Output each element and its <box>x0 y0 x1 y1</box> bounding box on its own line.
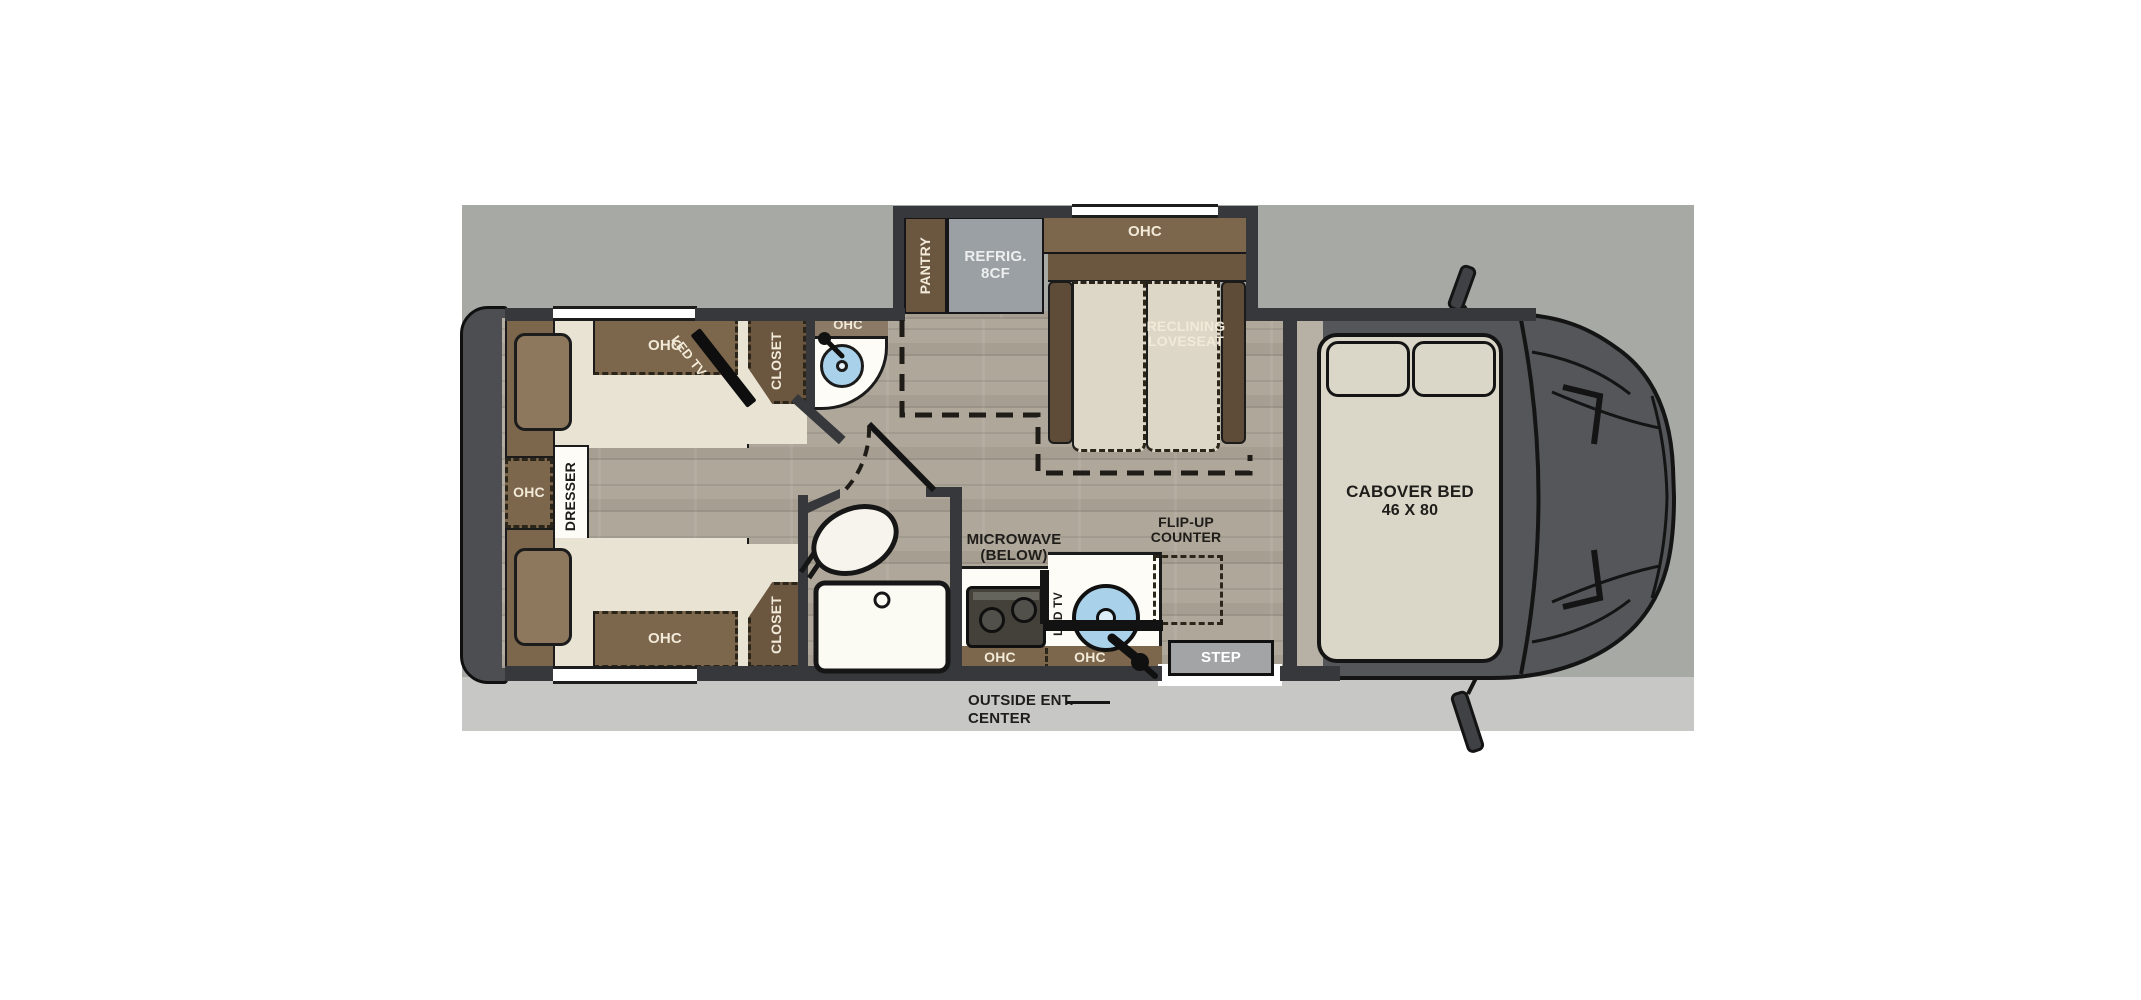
flipup-counter-outline <box>1153 555 1223 625</box>
window-top-bedroom <box>553 306 697 321</box>
ohc-galley-left-label: OHC <box>980 648 1020 668</box>
side-mirror-bottom <box>1451 678 1484 753</box>
ohc-bedroom-bottom: OHC <box>593 611 738 668</box>
slideout-wall-right <box>1246 206 1258 318</box>
pillow-top-bed <box>514 333 572 431</box>
slideout-wall-left <box>893 206 904 318</box>
loveseat-cushion-right <box>1146 281 1220 452</box>
microwave-label-1: MICROWAVE <box>967 531 1062 548</box>
bath-wall-left <box>798 495 808 668</box>
rear-cap <box>460 306 508 684</box>
wall-top-mid <box>695 308 905 321</box>
ohc-bedroom-bottom-label: OHC <box>648 631 682 647</box>
wall-vanity-divider <box>806 318 815 408</box>
loveseat-armrest-right <box>1221 281 1246 444</box>
microwave-label-2: (BELOW) <box>980 547 1047 564</box>
cabover-pillow-right <box>1412 341 1496 397</box>
bath-wall-top-stub <box>926 487 962 497</box>
bath-wall-right <box>950 487 962 668</box>
wall-top-rear <box>505 308 555 321</box>
wall-bottom-front <box>1280 666 1340 681</box>
dresser-label: DRESSER <box>563 462 578 531</box>
outside-ent-label-line2: CENTER <box>968 711 1080 727</box>
loveseat-backrest <box>1048 254 1246 282</box>
outside-ent-leader-line <box>1066 701 1110 704</box>
burner-left <box>979 607 1005 633</box>
microwave-label: MICROWAVE (BELOW) <box>958 530 1070 566</box>
burner-right <box>1011 597 1037 623</box>
loveseat-label: RECLINING LOVESEAT <box>1146 314 1226 354</box>
window-slideout <box>1072 204 1218 218</box>
pillow-bottom-bed <box>514 548 572 646</box>
ohc-slideout: OHC <box>1044 212 1246 254</box>
pantry-label: PANTRY <box>918 237 933 294</box>
vanity-sink-drain <box>836 360 848 372</box>
loveseat-armrest-left <box>1048 281 1073 444</box>
ohc-galley-right-label: OHC <box>1070 648 1110 668</box>
refrigerator: REFRIG. 8CF <box>947 217 1044 314</box>
loveseat-label-1: RECLINING <box>1147 318 1226 334</box>
ohc-rear-mid: OHC <box>505 458 553 528</box>
loveseat-cushion-left <box>1072 281 1146 452</box>
cooktop <box>966 586 1046 648</box>
ohc-rear-mid-label: OHC <box>513 485 545 500</box>
kitchen-tv <box>1040 570 1049 624</box>
cabover-label-1: CABOVER BED <box>1346 482 1474 501</box>
outside-ent-label-line1: OUTSIDE ENT. <box>968 693 1080 709</box>
loveseat-label-2: LOVESEAT <box>1148 333 1224 349</box>
refrig-label-1: REFRIG. <box>964 248 1026 265</box>
cabover-bed-label: CABOVER BED 46 X 80 <box>1330 478 1490 524</box>
cabover-pillow-left <box>1326 341 1410 397</box>
closet-top-label: CLOSET <box>769 332 784 390</box>
ohc-slideout-label: OHC <box>1128 224 1162 240</box>
kitchen-sink-drain <box>1096 608 1116 628</box>
cabover-label-2: 46 X 80 <box>1382 502 1439 519</box>
rv-floorplan: OHC CLOSET LED TV OHC DRESSER OHC CLOSET… <box>0 0 2141 1000</box>
flipup-label-1: FLIP-UP <box>1158 514 1214 530</box>
flipup-label-2: COUNTER <box>1151 529 1222 545</box>
wall-cab-bulkhead <box>1283 318 1297 668</box>
window-bottom-bedroom <box>553 666 697 684</box>
closet-bottom-label: CLOSET <box>769 596 784 654</box>
entry-step: STEP <box>1168 640 1274 676</box>
pantry: PANTRY <box>904 217 947 314</box>
vanity-faucet <box>818 332 831 345</box>
dresser: DRESSER <box>553 445 589 548</box>
kitchen-tv-label: LED TV <box>1050 585 1066 643</box>
flipup-label: FLIP-UP COUNTER <box>1144 512 1228 548</box>
step-label: STEP <box>1201 650 1241 666</box>
refrig-label-2: 8CF <box>981 265 1010 282</box>
